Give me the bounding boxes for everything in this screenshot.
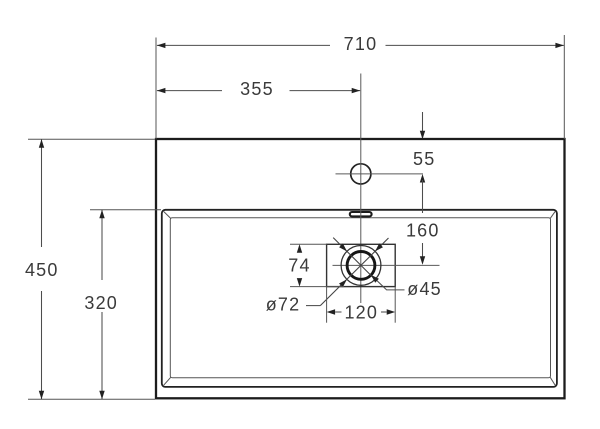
svg-text:355: 355	[240, 79, 274, 99]
svg-text:ø72: ø72	[266, 294, 301, 314]
svg-text:160: 160	[406, 220, 440, 240]
svg-text:120: 120	[344, 302, 378, 322]
svg-text:710: 710	[344, 34, 378, 54]
svg-text:320: 320	[84, 293, 118, 313]
svg-text:55: 55	[413, 149, 435, 169]
svg-text:74: 74	[288, 255, 310, 275]
svg-text:450: 450	[25, 260, 59, 280]
svg-text:ø45: ø45	[407, 279, 442, 299]
